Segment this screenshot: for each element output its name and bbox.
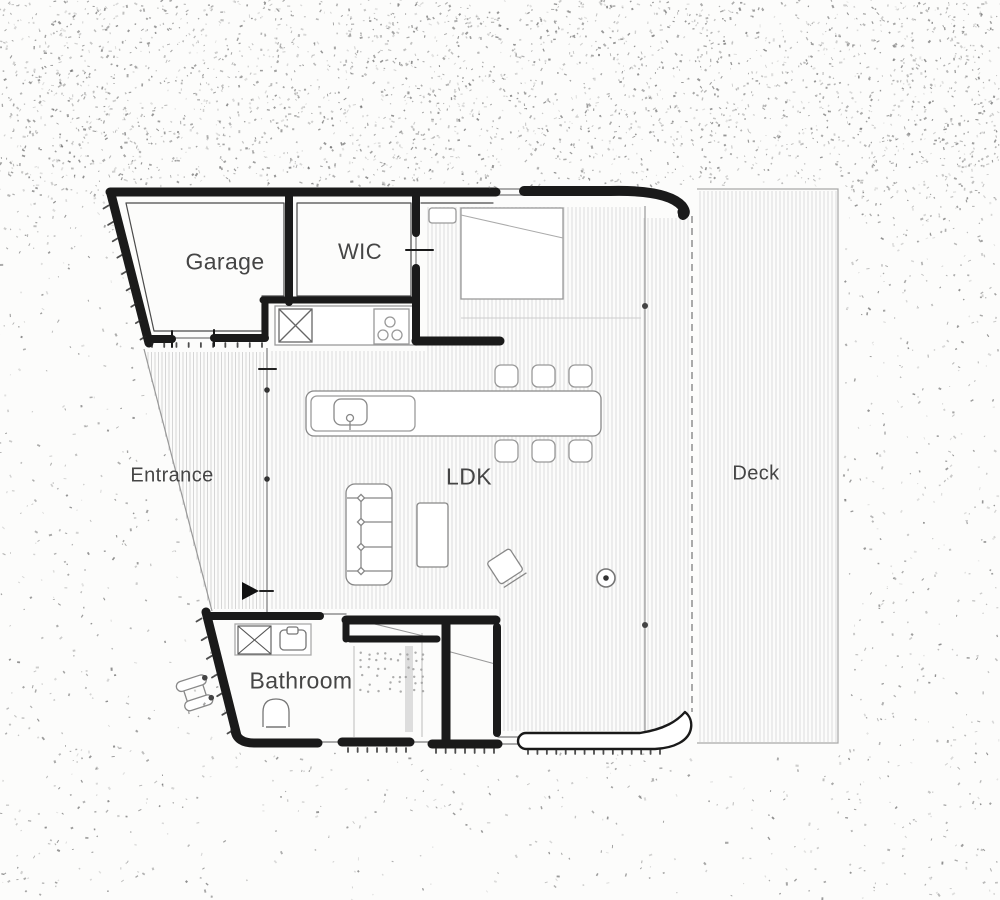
- garage-label: Garage: [185, 249, 264, 276]
- post-dot: [642, 622, 648, 628]
- chair-symbol: [569, 440, 592, 462]
- garage-slant-wall: [111, 194, 149, 343]
- floor-plan-page: Garage WIC Entrance LDK Deck Bathroom: [0, 0, 1000, 900]
- stool-symbol: [597, 569, 615, 587]
- bathroom-label: Bathroom: [250, 668, 353, 695]
- chair-symbol: [532, 365, 555, 387]
- wic-label: WIC: [338, 239, 382, 265]
- tile-dots: [359, 651, 424, 692]
- washbasin-symbol: [280, 627, 306, 650]
- floor-plan-drawing: [0, 0, 1000, 900]
- ldk-label: LDK: [446, 464, 492, 491]
- bathroom-slant-wall: [206, 612, 237, 736]
- outdoor-bench-symbol: [175, 673, 216, 713]
- bed-symbol: [461, 208, 563, 299]
- nightstand-symbol: [429, 208, 456, 223]
- post-dot: [264, 476, 270, 482]
- wall-end-blob: [678, 207, 689, 218]
- stove-symbol: [374, 309, 409, 344]
- post-dot: [642, 303, 648, 309]
- bathroom-bottom-wall: [235, 730, 318, 743]
- refrigerator-symbol: [279, 309, 312, 342]
- post-dot: [264, 387, 270, 393]
- coffee-table-symbol: [417, 503, 448, 567]
- chair-symbol: [495, 365, 518, 387]
- chair-symbol: [569, 365, 592, 387]
- sink-symbol: [334, 399, 367, 430]
- sofa-symbol: [346, 484, 392, 585]
- furniture-symbols: [175, 208, 615, 727]
- slope-line: [447, 651, 499, 665]
- chair-symbol: [495, 440, 518, 462]
- washing-machine-symbol: [238, 626, 271, 654]
- deck-label: Deck: [732, 463, 779, 486]
- toilet-symbol: [263, 699, 289, 727]
- chair-symbol: [532, 440, 555, 462]
- entrance-label: Entrance: [130, 465, 213, 488]
